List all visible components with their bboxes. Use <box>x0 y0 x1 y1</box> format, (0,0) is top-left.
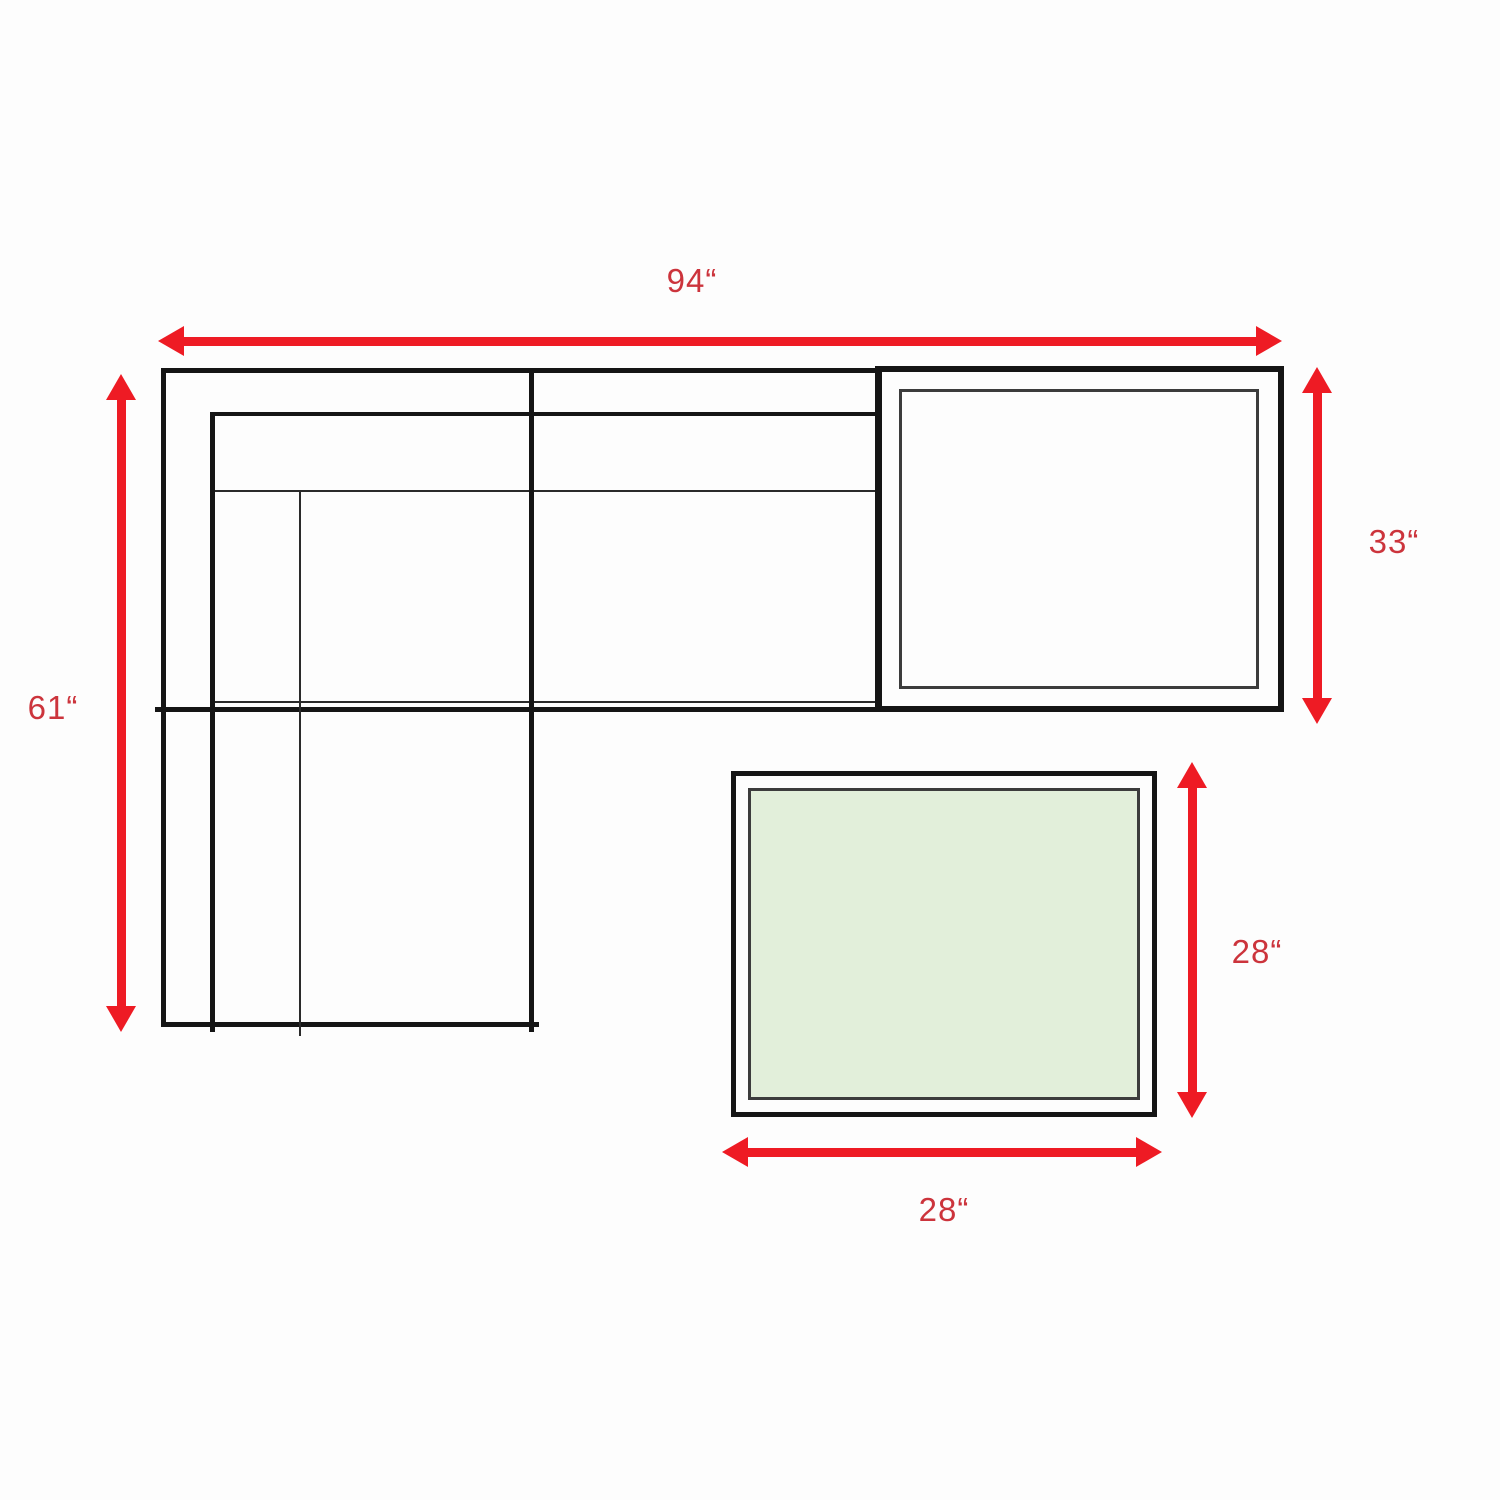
arrow-right-head-icon <box>1136 1137 1162 1167</box>
ottoman <box>731 771 1157 1117</box>
sofa-seat-front-line <box>210 701 880 703</box>
corner-table <box>876 366 1284 712</box>
ottoman-top-surface <box>748 788 1140 1100</box>
chaise-bottom-edge <box>161 1022 539 1027</box>
depth-dimension-arrow <box>105 374 137 1032</box>
arrow-shaft <box>180 337 1260 346</box>
sofa-outline-top-edge <box>161 368 880 373</box>
sofa-outline-left-edge <box>161 368 166 1027</box>
arrow-shaft <box>744 1148 1140 1157</box>
chaise-seat-inner-line <box>299 490 301 1036</box>
arrow-right-head-icon <box>1256 326 1282 356</box>
corner-table-depth-label: 33“ <box>1369 523 1420 561</box>
overall-width-label: 94“ <box>667 262 718 300</box>
sofa-section-divider <box>529 368 534 1032</box>
arrow-down-head-icon <box>1177 1092 1207 1118</box>
sofa-backrest-front-line <box>210 490 880 492</box>
ottoman-width-dimension-arrow <box>722 1136 1162 1168</box>
sofa-backrest-top-line <box>210 412 880 416</box>
ottoman-depth-label: 28“ <box>1232 933 1283 971</box>
ottoman-depth-dimension-arrow <box>1176 762 1208 1118</box>
overall-depth-label: 61“ <box>28 689 79 727</box>
dimension-diagram: 94“ 61“ 33“ 28“ 28“ <box>0 0 1500 1500</box>
arrow-shaft <box>1313 389 1322 702</box>
arrow-down-head-icon <box>106 1006 136 1032</box>
table-depth-dimension-arrow <box>1301 367 1333 724</box>
width-dimension-arrow <box>158 325 1282 357</box>
arrow-shaft <box>1188 784 1197 1096</box>
sofa-armrest-inner-line <box>210 412 215 1032</box>
corner-table-top-surface <box>899 389 1259 689</box>
arrow-down-head-icon <box>1302 698 1332 724</box>
sofa-front-edge <box>155 707 880 712</box>
ottoman-width-label: 28“ <box>919 1191 970 1229</box>
arrow-shaft <box>117 396 126 1010</box>
